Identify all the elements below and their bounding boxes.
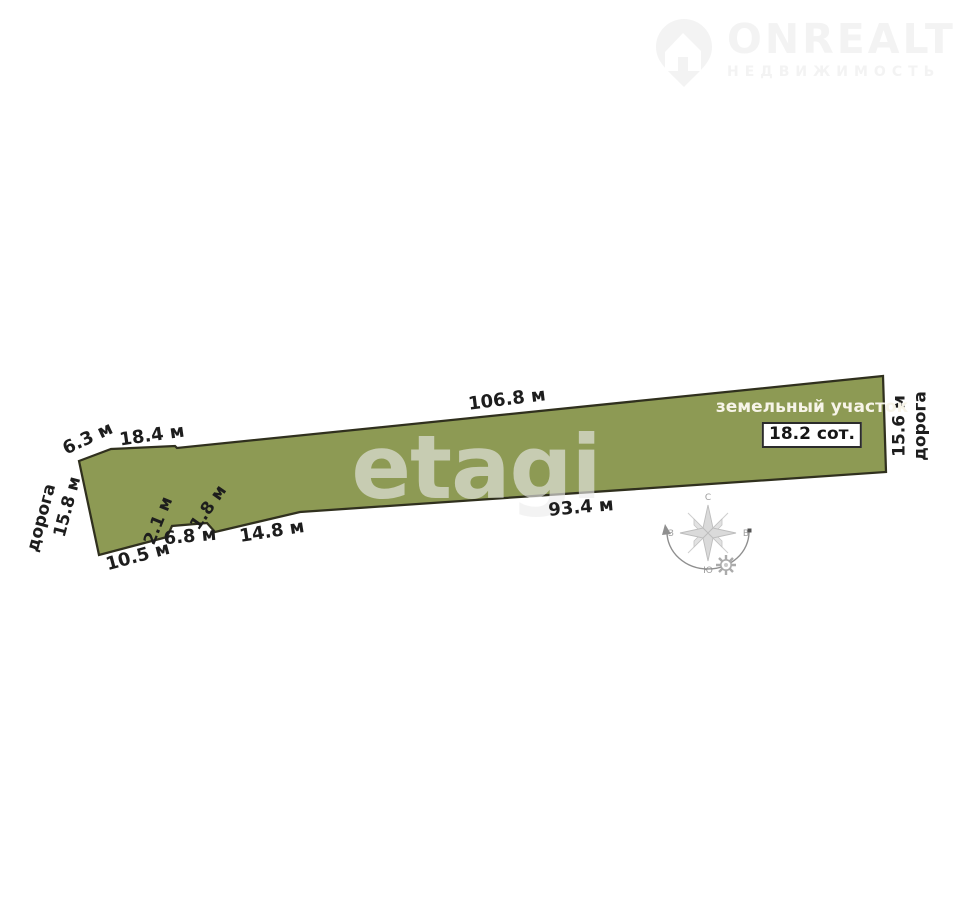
brand-name: ONREALT	[727, 18, 956, 61]
compass-rose: С Ю З В	[650, 488, 770, 592]
plot-info: земельный участок 18.2 сот.	[716, 398, 908, 448]
compass-arc-start-dot	[748, 529, 752, 533]
brand-pin-icon	[655, 18, 713, 88]
compass-south-label: Ю	[703, 566, 713, 576]
plot-title: земельный участок	[716, 398, 908, 417]
plot-plan-canvas: etagi 6.3 м 18.4 м 106.8 м дорога 15.8 м…	[0, 0, 960, 910]
plot-area-badge: 18.2 сот.	[762, 422, 862, 449]
measurement-notch-top: 6.8 м	[163, 526, 217, 549]
road-label-right: дорога	[913, 391, 930, 461]
compass-north-label: С	[705, 493, 711, 503]
brand-logo: ONREALT НЕДВИЖИМОСТЬ	[655, 18, 956, 88]
brand-tagline: НЕДВИЖИМОСТЬ	[727, 64, 956, 80]
sun-icon	[716, 555, 736, 575]
